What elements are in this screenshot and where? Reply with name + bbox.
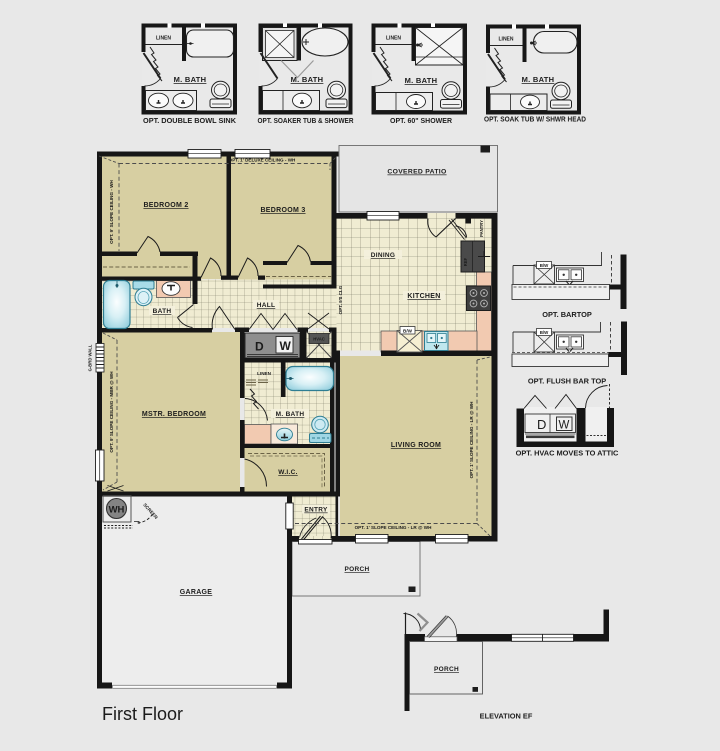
svg-text:BATH: BATH (153, 308, 172, 315)
svg-text:MSTR. BEDROOM: MSTR. BEDROOM (142, 411, 206, 418)
svg-text:M. BATH: M. BATH (405, 76, 438, 85)
svg-text:OPT. 9' SLOPE CEILING - WH: OPT. 9' SLOPE CEILING - WH (109, 180, 114, 244)
svg-text:D: D (537, 417, 546, 432)
svg-text:W.I.C.: W.I.C. (278, 469, 298, 476)
svg-text:OPT. 1' DELUXE CEILING - WH: OPT. 1' DELUXE CEILING - WH (229, 158, 296, 163)
svg-text:OPT. SOAK TUB W/ SHWR HEAD: OPT. SOAK TUB W/ SHWR HEAD (484, 115, 586, 124)
svg-text:OPT. 60" SHOWER: OPT. 60" SHOWER (390, 116, 452, 125)
svg-text:G-BRD WALL: G-BRD WALL (88, 344, 93, 371)
svg-text:HVAC: HVAC (313, 337, 325, 342)
svg-text:B/W: B/W (540, 330, 549, 335)
svg-text:GARAGE: GARAGE (180, 589, 213, 596)
svg-text:HALL: HALL (257, 302, 276, 309)
svg-text:BEDROOM 3: BEDROOM 3 (260, 207, 305, 214)
svg-text:LIVING ROOM: LIVING ROOM (391, 442, 441, 449)
svg-text:LINEN: LINEN (499, 37, 514, 43)
svg-text:PANTRY: PANTRY (479, 220, 484, 237)
svg-text:M. BATH: M. BATH (291, 75, 324, 84)
svg-text:D: D (255, 340, 264, 354)
svg-text:ELEVATION EF: ELEVATION EF (480, 712, 533, 721)
svg-text:BEDROOM 2: BEDROOM 2 (143, 202, 188, 209)
svg-text:COVERED PATIO: COVERED PATIO (387, 169, 446, 176)
svg-text:First Floor: First Floor (102, 704, 183, 724)
svg-text:OPT. 9'0 CLG: OPT. 9'0 CLG (338, 285, 343, 314)
svg-text:PORCH: PORCH (434, 666, 459, 673)
svg-text:ENTRY: ENTRY (304, 507, 328, 514)
svg-text:OPT. 1' SLOPE CEILING - LR @ W: OPT. 1' SLOPE CEILING - LR @ WH (355, 525, 432, 530)
svg-text:DINING: DINING (371, 252, 396, 259)
svg-text:B/W: B/W (540, 263, 549, 268)
svg-text:OPT. 1' SLOPE CEILING - LR @ W: OPT. 1' SLOPE CEILING - LR @ WH (469, 401, 474, 478)
svg-text:OPT. HVAC MOVES TO ATTIC: OPT. HVAC MOVES TO ATTIC (516, 449, 619, 458)
svg-text:M. BATH: M. BATH (522, 75, 555, 84)
svg-text:PORCH: PORCH (345, 566, 370, 573)
svg-text:LINEN: LINEN (156, 36, 171, 42)
svg-text:OPT. 9' SLOPE CEILING - MBR @: OPT. 9' SLOPE CEILING - MBR @ WH (109, 371, 114, 453)
svg-text:M. BATH: M. BATH (276, 411, 305, 418)
svg-text:W: W (280, 339, 292, 353)
svg-text:WH: WH (109, 505, 125, 516)
svg-text:OPT. DOUBLE BOWL SINK: OPT. DOUBLE BOWL SINK (143, 116, 236, 125)
svg-text:LINEN: LINEN (386, 36, 401, 42)
svg-text:LINEN: LINEN (257, 371, 271, 376)
svg-text:M. BATH: M. BATH (174, 75, 207, 84)
svg-text:OPT. SOAKER TUB & SHOWER: OPT. SOAKER TUB & SHOWER (258, 116, 354, 125)
svg-text:REF: REF (463, 257, 468, 266)
svg-text:KITCHEN: KITCHEN (407, 293, 440, 300)
svg-text:OPT. FLUSH BAR TOP: OPT. FLUSH BAR TOP (528, 377, 606, 386)
svg-text:W: W (559, 420, 570, 432)
svg-text:B/W: B/W (403, 328, 413, 333)
svg-text:OPT. BARTOP: OPT. BARTOP (542, 310, 592, 319)
